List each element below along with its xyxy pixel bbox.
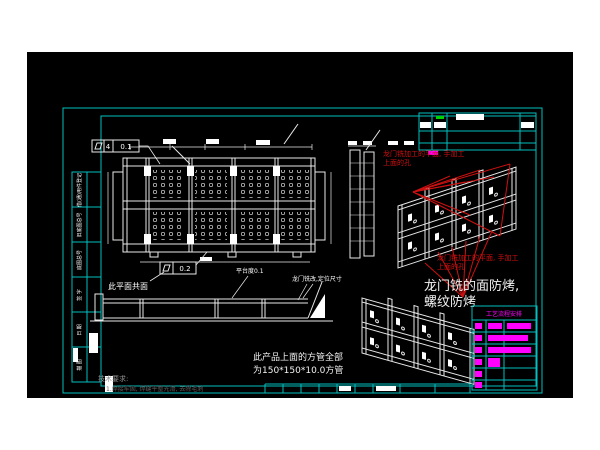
title-cell-text bbox=[420, 122, 431, 128]
dim-text bbox=[256, 140, 270, 145]
bottom-strip-text bbox=[339, 386, 351, 391]
strip-label: 旧底图总号 bbox=[76, 212, 83, 237]
strip-label: 借(通)用件登记 bbox=[76, 173, 83, 207]
gdt-value: 0.2 bbox=[179, 265, 190, 273]
strip-label: 底图总号 bbox=[76, 250, 83, 270]
gantry-mill-label: 龙门铣改,定位尺寸 bbox=[292, 275, 342, 283]
strip-label: 签 字 bbox=[76, 289, 83, 301]
table-row-mark bbox=[475, 347, 482, 353]
red-note-line2: 上面的孔 bbox=[437, 262, 465, 271]
platform-flatness-label: 平台度0.1 bbox=[236, 267, 264, 275]
dim-text bbox=[206, 139, 219, 144]
title-cell-text bbox=[434, 122, 446, 128]
process-table-header: 工艺流程安排 bbox=[486, 310, 522, 318]
table-row-mark bbox=[475, 335, 482, 341]
strip-label: 日 期 bbox=[77, 324, 83, 336]
gdt-prefix: 4 bbox=[106, 143, 111, 151]
red-note-line1: 龙门铣加工的平面, 手加工 bbox=[437, 253, 518, 262]
table-row-bar bbox=[488, 358, 500, 367]
strip-filled-cell bbox=[73, 348, 78, 362]
dim-text bbox=[163, 139, 176, 144]
strip-filled-cell bbox=[89, 333, 98, 353]
table-row-mark bbox=[475, 382, 482, 388]
table-row-mark bbox=[475, 323, 482, 329]
tube-note-line1: 此产品上面的方管全部 bbox=[253, 351, 343, 363]
tech-req-line: 1.焊接牢固, 焊缝平整光滑, 去除毛刺 bbox=[106, 385, 203, 393]
table-row-bar bbox=[507, 323, 531, 329]
title-cell-text bbox=[456, 114, 484, 120]
red-note-line2: 上面的孔 bbox=[383, 158, 411, 167]
table-row-bar bbox=[488, 323, 502, 329]
drawing-canvas: 借(通)用件登记 旧底图总号 底图总号 签 字 日 期 描 图 bbox=[0, 0, 600, 450]
table-row-bar bbox=[488, 347, 531, 353]
tube-note-line2: 为150*150*10.0方管 bbox=[253, 364, 343, 376]
table-row-mark bbox=[475, 371, 482, 377]
bottom-strip-text bbox=[376, 386, 396, 391]
surface-note-line2: 螺纹防烤 bbox=[424, 294, 476, 310]
cad-screenshot: 借(通)用件登记 旧底图总号 底图总号 签 字 日 期 描 图 bbox=[0, 0, 600, 450]
surface-note-line1: 龙门铣的面防烤, bbox=[424, 278, 519, 294]
red-note-line1: 龙门铣加工的平面, 手加工 bbox=[383, 149, 464, 158]
table-row-bar bbox=[488, 335, 528, 341]
green-tick bbox=[436, 116, 444, 119]
coplanar-label: 此平面共面 bbox=[108, 281, 148, 291]
dim-text bbox=[404, 141, 414, 145]
dim-text bbox=[348, 141, 357, 145]
tech-req-title: 技术要求: bbox=[98, 374, 128, 383]
title-cell-text bbox=[521, 122, 534, 128]
gdt-value: 0.1 bbox=[120, 143, 131, 151]
dim-text bbox=[388, 141, 398, 145]
table-row-mark bbox=[475, 359, 482, 365]
